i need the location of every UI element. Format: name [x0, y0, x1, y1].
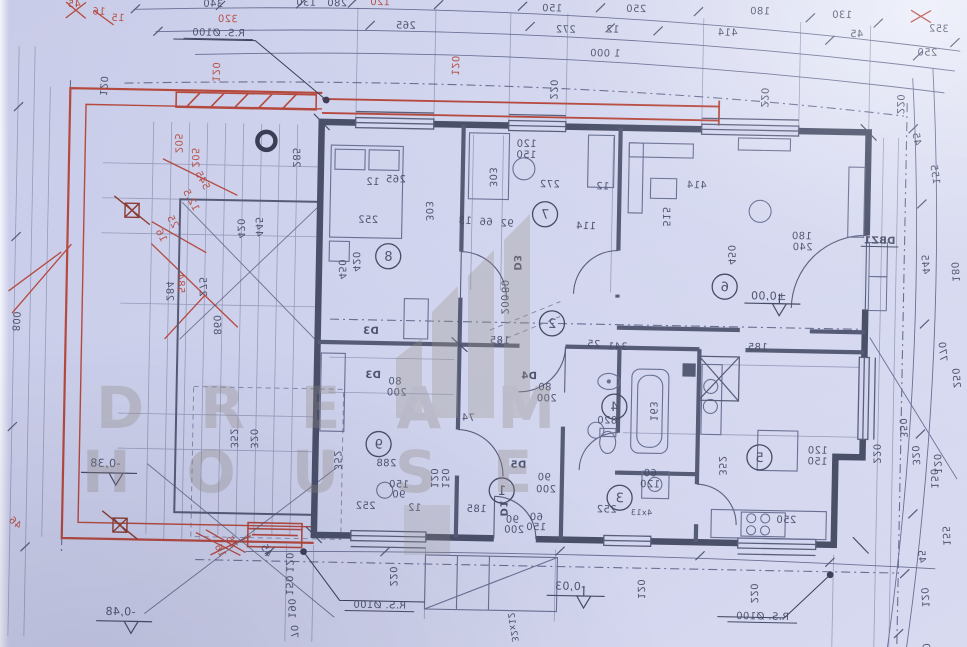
svg-text:303: 303: [423, 201, 434, 221]
svg-text:185: 185: [747, 342, 768, 353]
dim-label: 420: [235, 218, 246, 238]
dim-label: 350: [896, 418, 908, 439]
dim-label: 163: [647, 401, 658, 421]
svg-text:66: 66: [479, 217, 493, 228]
svg-text:0: 0: [920, 643, 931, 647]
svg-text:114: 114: [576, 221, 597, 232]
dim-label: 155: [939, 525, 951, 546]
svg-text:252: 252: [358, 215, 379, 226]
dim-label: 414: [717, 28, 738, 39]
dim-label: 70: [288, 625, 299, 639]
dim-label: 4x13: [630, 508, 652, 517]
svg-text:180: 180: [948, 261, 961, 282]
dim-label: 120: [283, 552, 294, 572]
dim-label: 120: [807, 445, 828, 456]
svg-text:120: 120: [807, 445, 828, 456]
svg-text:D3: D3: [363, 326, 379, 337]
svg-text:25: 25: [587, 339, 601, 350]
dim-label: 120: [516, 139, 537, 150]
svg-text:16: 16: [92, 6, 106, 17]
watermark-line1: DREAM: [96, 374, 611, 442]
svg-text:265: 265: [395, 20, 416, 31]
dim-label: 340: [203, 0, 224, 10]
svg-text:120: 120: [283, 552, 294, 572]
dim-label: 45: [915, 549, 927, 563]
dim-label: 420: [350, 251, 361, 271]
dim-label: 450: [725, 244, 736, 264]
svg-text:120: 120: [210, 62, 221, 83]
svg-text:7: 7: [541, 208, 550, 223]
dim-label: 1 000: [590, 48, 621, 60]
dim-label: 800: [9, 311, 21, 332]
svg-text:92: 92: [500, 218, 514, 229]
svg-text:163: 163: [647, 401, 658, 421]
svg-text:272: 272: [555, 24, 576, 35]
dim-label: 352: [928, 24, 949, 35]
dim-label: 190: [285, 598, 296, 618]
svg-text:420: 420: [235, 218, 246, 238]
dim-label: 515: [660, 206, 671, 226]
dim-label: 16: [92, 6, 106, 17]
svg-text:1 000: 1 000: [590, 48, 621, 60]
dim-label: 12: [366, 177, 380, 188]
dim-label: 180: [791, 231, 812, 242]
svg-text:352: 352: [928, 24, 949, 35]
svg-text:280: 280: [327, 0, 348, 9]
svg-text:220: 220: [547, 79, 558, 100]
svg-text:303: 303: [487, 167, 498, 187]
dim-label: 220: [870, 443, 881, 463]
dim-label: 250: [626, 4, 647, 15]
dim-label: 60: [643, 468, 657, 479]
dim-label: 180: [948, 261, 961, 282]
dim-label: 45: [67, 0, 81, 10]
dim-label: 120: [640, 479, 661, 490]
svg-text:120: 120: [97, 75, 109, 96]
pipe-note-label: DBZ1: [861, 235, 899, 247]
dim-label: 150: [526, 522, 547, 533]
svg-text:150: 150: [542, 3, 563, 14]
dim-label: 275: [196, 276, 207, 296]
svg-text:5: 5: [755, 451, 764, 466]
dim-label: 150: [542, 3, 563, 14]
door-label: D3: [363, 326, 379, 337]
dim-label: 220: [387, 566, 398, 586]
floorplan-svg: 3401302801203204516151502501801302652721…: [0, 0, 967, 647]
dim-label: 200: [504, 524, 525, 535]
dim-label: 265: [385, 174, 406, 185]
pipe-note-label: R.S. Ø100: [727, 610, 797, 623]
svg-text:13: 13: [458, 216, 472, 227]
svg-text:250: 250: [626, 4, 647, 15]
svg-text:250: 250: [917, 47, 938, 58]
svg-text:155: 155: [939, 525, 951, 546]
svg-text:350: 350: [896, 418, 908, 439]
dim-label: 240: [792, 242, 813, 253]
svg-text:150: 150: [526, 522, 547, 533]
dim-label: 150: [928, 468, 940, 489]
svg-text:190: 190: [285, 598, 296, 618]
svg-text:120: 120: [635, 579, 646, 599]
dim-label: 220: [758, 87, 769, 108]
svg-text:272: 272: [539, 179, 560, 190]
dim-label: 280: [327, 0, 348, 9]
svg-text:2: 2: [547, 317, 556, 332]
svg-text:3: 3: [615, 491, 624, 506]
dim-label: 860: [211, 315, 222, 335]
dim-label: 272: [539, 179, 560, 190]
dim-label: 584: [174, 273, 185, 293]
svg-text:352: 352: [716, 455, 727, 475]
svg-text:584: 584: [174, 273, 185, 293]
dim-label: ±0,00: [751, 289, 787, 303]
svg-text:240: 240: [792, 242, 813, 253]
svg-text:445: 445: [918, 254, 931, 275]
dim-label: 445: [253, 216, 264, 236]
dim-label: -0,03: [555, 579, 586, 593]
dim-label: 284: [163, 281, 174, 301]
dim-label: 205: [189, 147, 200, 167]
dim-label: 220: [894, 94, 905, 115]
svg-text:341: 341: [607, 341, 628, 352]
svg-text:12: 12: [606, 24, 620, 35]
svg-text:220: 220: [870, 443, 881, 463]
svg-text:-0,48: -0,48: [105, 605, 136, 619]
dim-label: 45: [850, 29, 864, 40]
dim-label: 114: [576, 221, 597, 232]
pipe-note-label: R.S. Ø100: [184, 26, 254, 39]
pipe-note-label: R.S. Ø100: [345, 598, 415, 611]
watermark-line2: HOUSE: [82, 438, 588, 506]
dim-label: 185: [747, 342, 768, 353]
svg-text:120: 120: [640, 479, 661, 490]
svg-text:8: 8: [384, 250, 393, 265]
svg-text:414: 414: [717, 28, 738, 39]
dim-label: 25: [587, 339, 601, 350]
svg-text:120: 120: [449, 55, 460, 76]
floorplan-photo: 3401302801203204516151502501801302652721…: [0, 0, 967, 647]
svg-text:R.S. Ø100: R.S. Ø100: [353, 599, 406, 612]
svg-text:6: 6: [720, 280, 729, 295]
dim-label: 180: [750, 6, 771, 17]
svg-text:120: 120: [370, 0, 391, 8]
dim-label: 450: [336, 259, 347, 279]
svg-text:205: 205: [189, 147, 200, 167]
svg-text:180: 180: [750, 6, 771, 17]
svg-text:150: 150: [807, 456, 828, 467]
svg-text:130: 130: [832, 10, 853, 21]
dim-label: 341: [607, 341, 628, 352]
dim-label: 265: [395, 20, 416, 31]
dim-label: 352: [716, 455, 727, 475]
svg-text:860: 860: [211, 315, 222, 335]
svg-text:45: 45: [850, 29, 864, 40]
dim-label: 130: [296, 0, 317, 9]
dim-label: 220: [547, 79, 558, 100]
dim-label: 320: [217, 14, 238, 25]
svg-text:4x13: 4x13: [630, 508, 652, 517]
svg-text:12: 12: [366, 177, 380, 188]
dim-label: 120: [449, 55, 460, 76]
dim-label: 45: [910, 131, 923, 146]
dim-label: 13: [458, 216, 472, 227]
dim-label: 0: [920, 643, 931, 647]
dim-label: 120: [97, 75, 109, 96]
dim-label: 250: [917, 47, 938, 58]
svg-text:450: 450: [725, 244, 736, 264]
dim-label: -0,48: [105, 605, 136, 619]
dim-label: 414: [686, 180, 707, 191]
dim-label: 150: [516, 150, 537, 161]
dim-label: 120: [370, 0, 391, 8]
svg-text:-0,03: -0,03: [555, 579, 586, 593]
dim-label: 12: [606, 24, 620, 35]
svg-text:340: 340: [203, 0, 224, 10]
svg-text:250: 250: [776, 515, 797, 526]
dim-label: 285: [290, 147, 301, 167]
svg-text:45: 45: [915, 549, 927, 563]
svg-text:284: 284: [163, 281, 174, 301]
svg-text:12: 12: [596, 181, 610, 192]
svg-text:120: 120: [516, 139, 537, 150]
dim-label: 445: [918, 254, 931, 275]
svg-text:445: 445: [253, 216, 264, 236]
svg-text:220: 220: [894, 94, 905, 115]
svg-text:DBZ1: DBZ1: [864, 235, 896, 247]
svg-text:205: 205: [172, 133, 183, 153]
svg-text:150: 150: [928, 468, 940, 489]
svg-text:45: 45: [67, 0, 81, 10]
chimney: [683, 364, 695, 376]
svg-text:220: 220: [758, 87, 769, 108]
svg-text:45: 45: [910, 131, 923, 146]
svg-text:R.S. Ø100: R.S. Ø100: [736, 610, 789, 623]
svg-text:150: 150: [283, 575, 294, 595]
svg-text:265: 265: [385, 174, 406, 185]
dim-label: 205: [172, 133, 183, 153]
dim-label: 150: [807, 456, 828, 467]
dim-label: 120: [918, 587, 930, 608]
dim-label: 272: [555, 24, 576, 35]
dim-label: 220: [748, 583, 759, 603]
dim-label: 303: [423, 201, 434, 221]
svg-text:R.S. Ø100: R.S. Ø100: [192, 26, 245, 39]
svg-text:275: 275: [196, 276, 207, 296]
svg-text:320: 320: [217, 14, 238, 25]
svg-text:220: 220: [748, 583, 759, 603]
svg-text:220: 220: [387, 566, 398, 586]
dim-label: 15: [111, 13, 125, 24]
dim-label: 66: [479, 217, 493, 228]
dim-label: 770: [936, 341, 949, 362]
svg-text:250: 250: [949, 367, 962, 388]
dim-label: 320: [909, 445, 921, 466]
dim-label: 120: [210, 62, 221, 83]
svg-text:130: 130: [296, 0, 317, 9]
dim-label: 120: [635, 579, 646, 599]
svg-text:320: 320: [909, 445, 921, 466]
dim-label: 252: [596, 504, 617, 515]
svg-text:285: 285: [290, 147, 301, 167]
dim-label: 303: [487, 167, 498, 187]
svg-text:±0,00: ±0,00: [751, 289, 787, 303]
svg-text:120: 120: [918, 587, 930, 608]
dim-label: 252: [358, 215, 379, 226]
dim-label: 12: [596, 181, 610, 192]
dim-label: 250: [776, 515, 797, 526]
svg-text:515: 515: [660, 206, 671, 226]
svg-text:15: 15: [111, 13, 125, 24]
svg-text:60: 60: [643, 468, 657, 479]
svg-text:180: 180: [791, 231, 812, 242]
dim-label: 150: [283, 575, 294, 595]
dim-label: 130: [832, 10, 853, 21]
svg-text:800: 800: [9, 311, 21, 332]
svg-text:420: 420: [350, 251, 361, 271]
svg-text:150: 150: [516, 150, 537, 161]
svg-text:200: 200: [504, 524, 525, 535]
svg-text:70: 70: [288, 625, 299, 639]
svg-text:414: 414: [686, 180, 707, 191]
svg-text:252: 252: [596, 504, 617, 515]
dim-label: 250: [949, 367, 962, 388]
dim-label: 92: [500, 218, 514, 229]
svg-text:450: 450: [336, 259, 347, 279]
svg-text:770: 770: [936, 341, 949, 362]
svg-text:4: 4: [610, 400, 619, 415]
